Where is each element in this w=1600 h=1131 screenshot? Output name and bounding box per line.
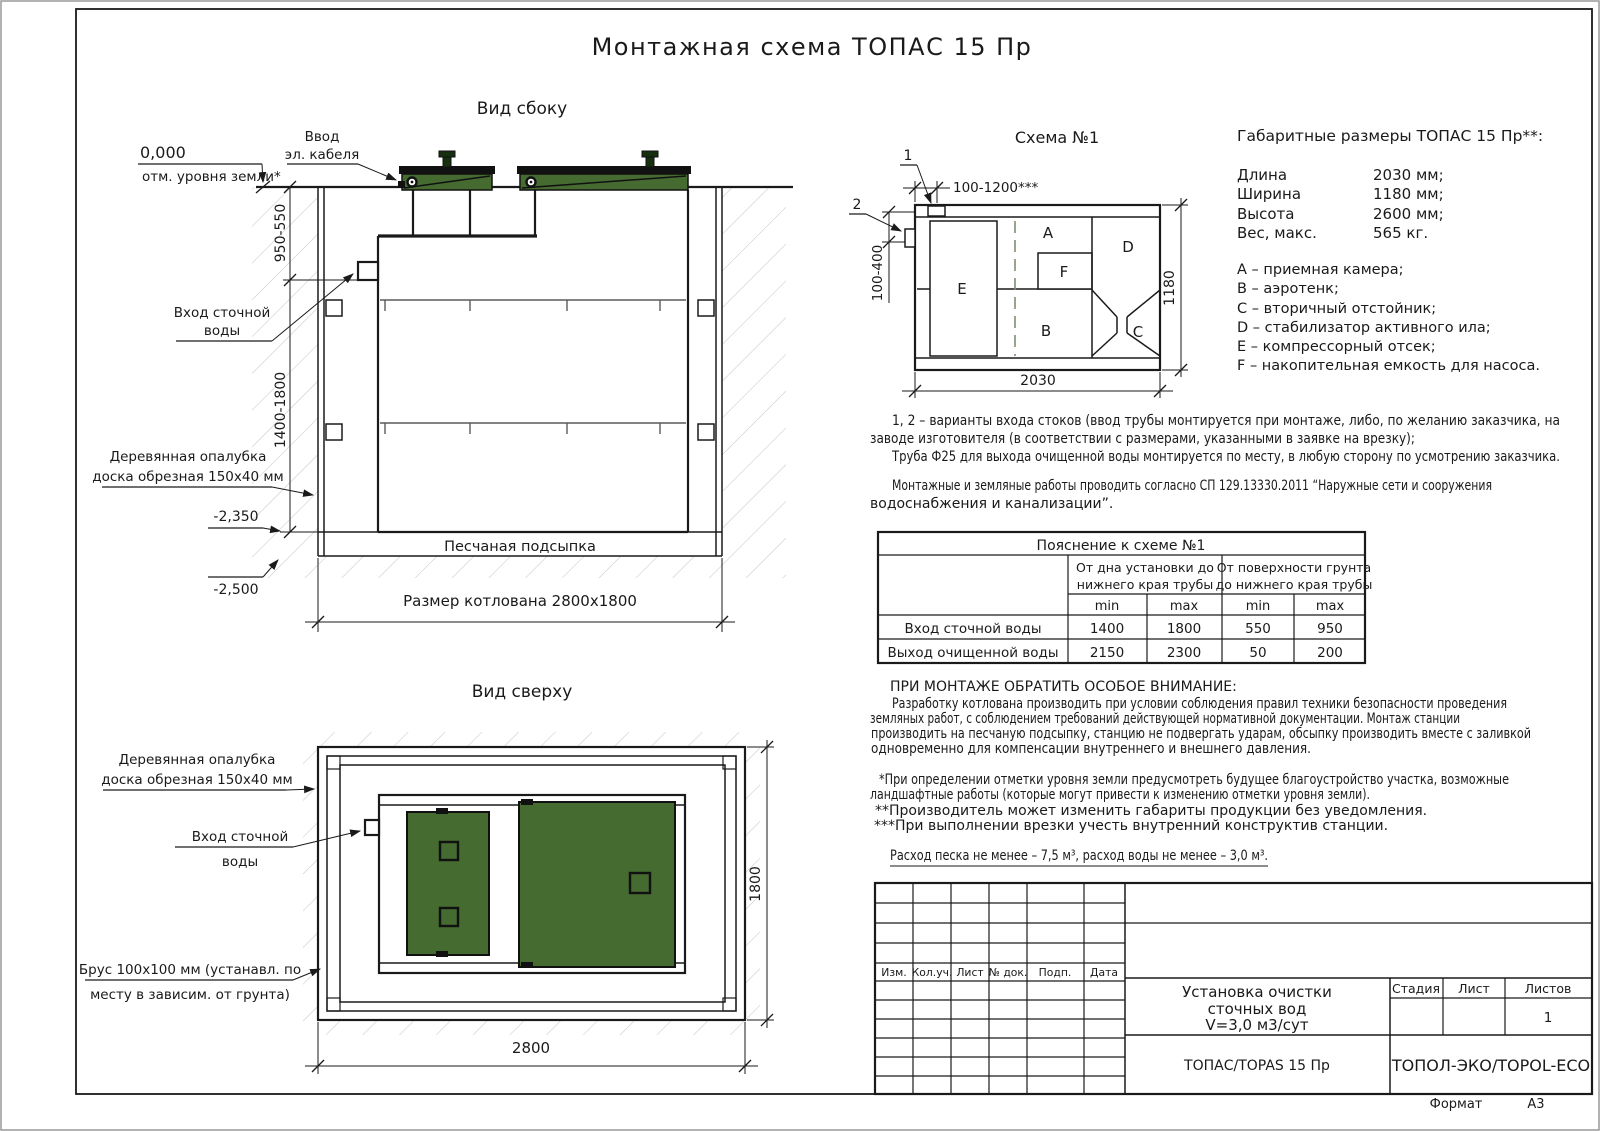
attention-title: ПРИ МОНТАЖЕ ОБРАТИТЬ ОСОБОЕ ВНИМАНИЕ: [890, 679, 1237, 695]
legend-line: D – стабилизатор активного ила; [1237, 320, 1491, 336]
spec-label: Ширина [1237, 185, 1301, 203]
svg-text:100-1200***: 100-1200*** [953, 180, 1038, 196]
table-min-header: min [1246, 599, 1271, 614]
inlet-pipe-stub [358, 262, 378, 280]
drawing-sheet: Монтажная схема ТОПАС 15 Пр Вид сбоку Пе… [0, 0, 1600, 1131]
table-title: Пояснение к схеме №1 [1037, 538, 1206, 554]
tb-col-koluch: Кол.уч. [912, 966, 953, 979]
note-line: заводе изготовителя (в соответствии с ра… [870, 431, 1415, 447]
consumption-note: Расход песка не менее – 7,5 м³, расход в… [890, 848, 1268, 864]
dim-1400-1800: 1400-1800 [273, 372, 289, 448]
svg-text:Брус 100х100 мм (устанавл. по: Брус 100х100 мм (устанавл. по [79, 962, 301, 978]
svg-text:200: 200 [1317, 645, 1343, 661]
svg-text:100-400: 100-400 [870, 245, 886, 301]
svg-text:1800: 1800 [1167, 621, 1201, 637]
svg-text:воды: воды [204, 323, 240, 339]
legend-line: А – приемная камера; [1237, 262, 1404, 278]
table-group1-header: нижнего края трубы [1077, 577, 1213, 592]
spec-label: Вес, макс. [1237, 224, 1317, 242]
svg-text:2: 2 [853, 197, 862, 213]
svg-text:1180: 1180 [1162, 270, 1178, 306]
format-value: А3 [1527, 1097, 1544, 1112]
explanation-table: Пояснение к схеме №1 От дна установки до… [878, 532, 1372, 663]
svg-text:Выход очищенной воды: Выход очищенной воды [887, 645, 1058, 661]
schema-title: Схема №1 [1015, 128, 1099, 147]
note-line: водоснабжения и канализации”. [870, 496, 1113, 512]
lid-left-top [407, 808, 489, 957]
svg-text:550: 550 [1245, 621, 1271, 637]
specs-title: Габаритные размеры ТОПАС 15 Пр**: [1237, 127, 1543, 145]
note-line: Труба Ф25 для выхода очищенной воды монт… [891, 449, 1560, 465]
svg-text:2300: 2300 [1167, 645, 1201, 661]
table-group2-header: до нижнего края трубы [1216, 577, 1373, 592]
top-view-title: Вид сверху [472, 682, 573, 702]
svg-text:2150: 2150 [1090, 645, 1124, 661]
tb-company: ТОПОЛ-ЭКО/TOPOL-ECO [1391, 1056, 1590, 1075]
tb-sheets-value: 1 [1544, 1010, 1553, 1026]
ground-level-note: отм. уровня земли* [142, 169, 281, 185]
tb-col-izm: Изм. [881, 966, 906, 979]
svg-text:Вход сточной: Вход сточной [192, 829, 289, 845]
tb-stage-label: Стадия [1392, 981, 1440, 996]
compartment-c-label: C [1133, 323, 1143, 341]
legend-line: Е – компрессорный отсек; [1237, 339, 1436, 355]
tb-col-list: Лист [956, 966, 983, 979]
spec-label: Высота [1237, 205, 1295, 223]
compartment-a-label: A [1043, 224, 1054, 242]
table-group2-header: От поверхности грунта [1217, 560, 1371, 575]
elevation-zero-value: 0,000 [140, 143, 186, 162]
svg-text:доска обрезная 150х40 мм: доска обрезная 150х40 мм [92, 469, 283, 485]
vent-icon [439, 151, 455, 157]
page-title: Монтажная схема ТОПАС 15 Пр [592, 33, 1033, 61]
svg-text:1: 1 [904, 148, 913, 164]
table-max-header: max [1170, 599, 1199, 614]
svg-text:доска обрезная 150х40 мм: доска обрезная 150х40 мм [101, 772, 292, 788]
spec-label: Длина [1237, 166, 1287, 184]
svg-text:1400: 1400 [1090, 621, 1124, 637]
legend-line: В – аэротенк; [1237, 281, 1339, 297]
svg-text:Вход сточной: Вход сточной [174, 305, 271, 321]
title-block: Изм. Кол.уч. Лист № док. Подп. Дата Уста… [875, 883, 1592, 1094]
pit-size-label: Размер котлована 2800х1800 [403, 592, 637, 610]
inlet-pipe-stub-top [365, 820, 379, 835]
footnote-line: *При определении отметки уровня земли пр… [879, 772, 1509, 788]
spec-value: 2030 мм; [1373, 166, 1444, 184]
svg-text:-2,500: -2,500 [213, 582, 258, 598]
note-line: одновременно для компенсации внутреннего… [871, 741, 1311, 757]
table-min-header: min [1095, 599, 1120, 614]
lid-right-top [519, 799, 675, 968]
spec-value: 2600 мм; [1373, 205, 1444, 223]
svg-text:Деревянная опалубка: Деревянная опалубка [119, 752, 276, 768]
note-line: Разработку котлована производить при усл… [892, 696, 1507, 712]
legend-line: С – вторичный отстойник; [1237, 301, 1436, 317]
table-max-header: max [1316, 599, 1345, 614]
compartment-b-label: B [1041, 322, 1051, 340]
vent-icon [642, 151, 658, 157]
svg-text:месту в зависим. от грунта): месту в зависим. от грунта) [90, 987, 290, 1003]
tb-sheet-label: Лист [1458, 981, 1490, 996]
tb-col-dok: № док. [989, 966, 1028, 979]
compartment-f-label: F [1060, 263, 1069, 281]
legend-line: F – накопительная емкость для насоса. [1237, 358, 1540, 374]
svg-text:2800: 2800 [512, 1039, 550, 1057]
svg-text:воды: воды [222, 854, 258, 870]
format-label: Формат [1430, 1097, 1483, 1112]
cable-entry-point [398, 181, 405, 188]
side-view-title: Вид сбоку [477, 99, 567, 119]
footnote-line: ландшафтные работы (которые могут привес… [870, 787, 1370, 803]
compartment-d-label: D [1122, 238, 1134, 256]
footnote-line: **Производитель может изменить габариты … [875, 803, 1427, 819]
svg-text:950: 950 [1317, 621, 1343, 637]
note-line: земляных работ, с соблюдением требований… [870, 711, 1460, 727]
schema-top-entry [928, 206, 945, 216]
svg-text:2030: 2030 [1020, 373, 1056, 389]
note-line: 1, 2 – варианты входа стоков (ввод трубы… [892, 413, 1560, 429]
svg-text:Вход сточной воды: Вход сточной воды [904, 621, 1041, 637]
spec-value: 1180 мм; [1373, 185, 1444, 203]
svg-text:Ввод: Ввод [305, 129, 340, 145]
drawing-canvas: Монтажная схема ТОПАС 15 Пр Вид сбоку Пе… [0, 0, 1600, 1131]
svg-text:1800: 1800 [748, 866, 764, 902]
compartment-e-label: E [957, 280, 966, 298]
tb-sheets-label: Листов [1525, 981, 1572, 996]
footnote-line: ***При выполнении врезки учесть внутренн… [874, 818, 1388, 834]
svg-text:50: 50 [1249, 645, 1266, 661]
tb-doc-title: V=3,0 м3/сут [1205, 1016, 1308, 1034]
svg-text:Деревянная опалубка: Деревянная опалубка [110, 449, 267, 465]
schema-side-entry [905, 229, 915, 247]
note-line: Монтажные и земляные работы проводить со… [892, 478, 1492, 494]
tb-product: ТОПАС/TOPAS 15 Пр [1183, 1058, 1330, 1074]
note-line: производить на песчаную подсыпку, станци… [871, 726, 1531, 742]
spec-value: 565 кг. [1373, 224, 1428, 242]
svg-text:эл. кабеля: эл. кабеля [285, 147, 359, 163]
sand-label: Песчаная подсыпка [444, 539, 596, 555]
table-group1-header: От дна установки до [1076, 560, 1214, 575]
tb-col-podp: Подп. [1039, 966, 1072, 979]
tb-doc-title: Установка очистки [1182, 983, 1332, 1001]
tb-col-data: Дата [1090, 966, 1118, 979]
svg-text:-2,350: -2,350 [213, 509, 258, 525]
dim-950-550: 950-550 [273, 204, 289, 263]
